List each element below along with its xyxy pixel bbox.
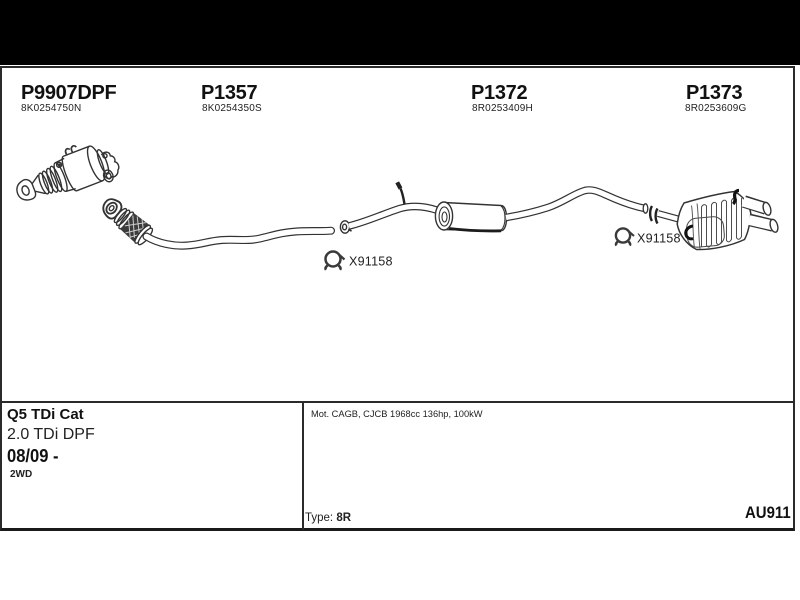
svg-text:X91158: X91158 — [637, 232, 681, 246]
svg-text:X91158: X91158 — [349, 255, 393, 269]
